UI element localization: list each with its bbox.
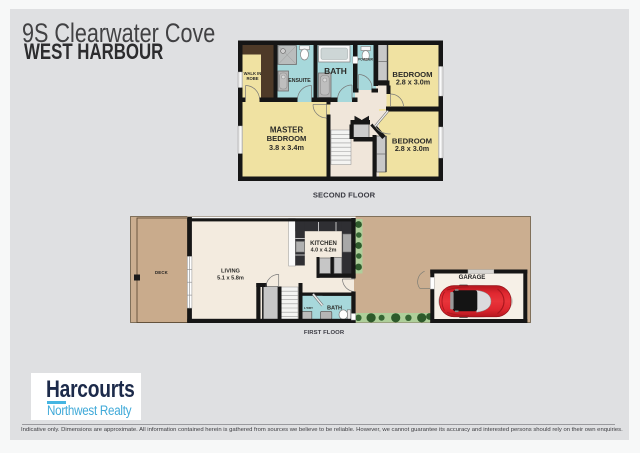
svg-text:BATH: BATH (327, 305, 342, 311)
svg-text:L'DRY: L'DRY (304, 306, 314, 310)
svg-text:3.8 x 3.4m: 3.8 x 3.4m (269, 143, 304, 152)
svg-text:4.0 x 4.2m: 4.0 x 4.2m (311, 247, 337, 253)
svg-text:2.8 x 3.0m: 2.8 x 3.0m (395, 144, 429, 153)
svg-text:POWDER: POWDER (358, 58, 373, 62)
svg-text:LIVING: LIVING (221, 269, 241, 275)
svg-text:BATH: BATH (324, 66, 347, 76)
svg-text:2.8 x 3.0m: 2.8 x 3.0m (396, 78, 430, 87)
svg-text:KITCHEN: KITCHEN (310, 241, 337, 247)
svg-text:DECK: DECK (155, 270, 169, 275)
svg-text:BEDROOM: BEDROOM (267, 134, 307, 143)
svg-text:FIRST FLOOR: FIRST FLOOR (304, 330, 345, 336)
svg-text:SECOND FLOOR: SECOND FLOOR (313, 191, 376, 200)
svg-text:5.1 x 5.8m: 5.1 x 5.8m (217, 276, 244, 282)
svg-text:ENSUITE: ENSUITE (288, 78, 311, 84)
svg-text:GARAGE: GARAGE (459, 274, 486, 281)
svg-text:ROBE: ROBE (246, 76, 258, 81)
